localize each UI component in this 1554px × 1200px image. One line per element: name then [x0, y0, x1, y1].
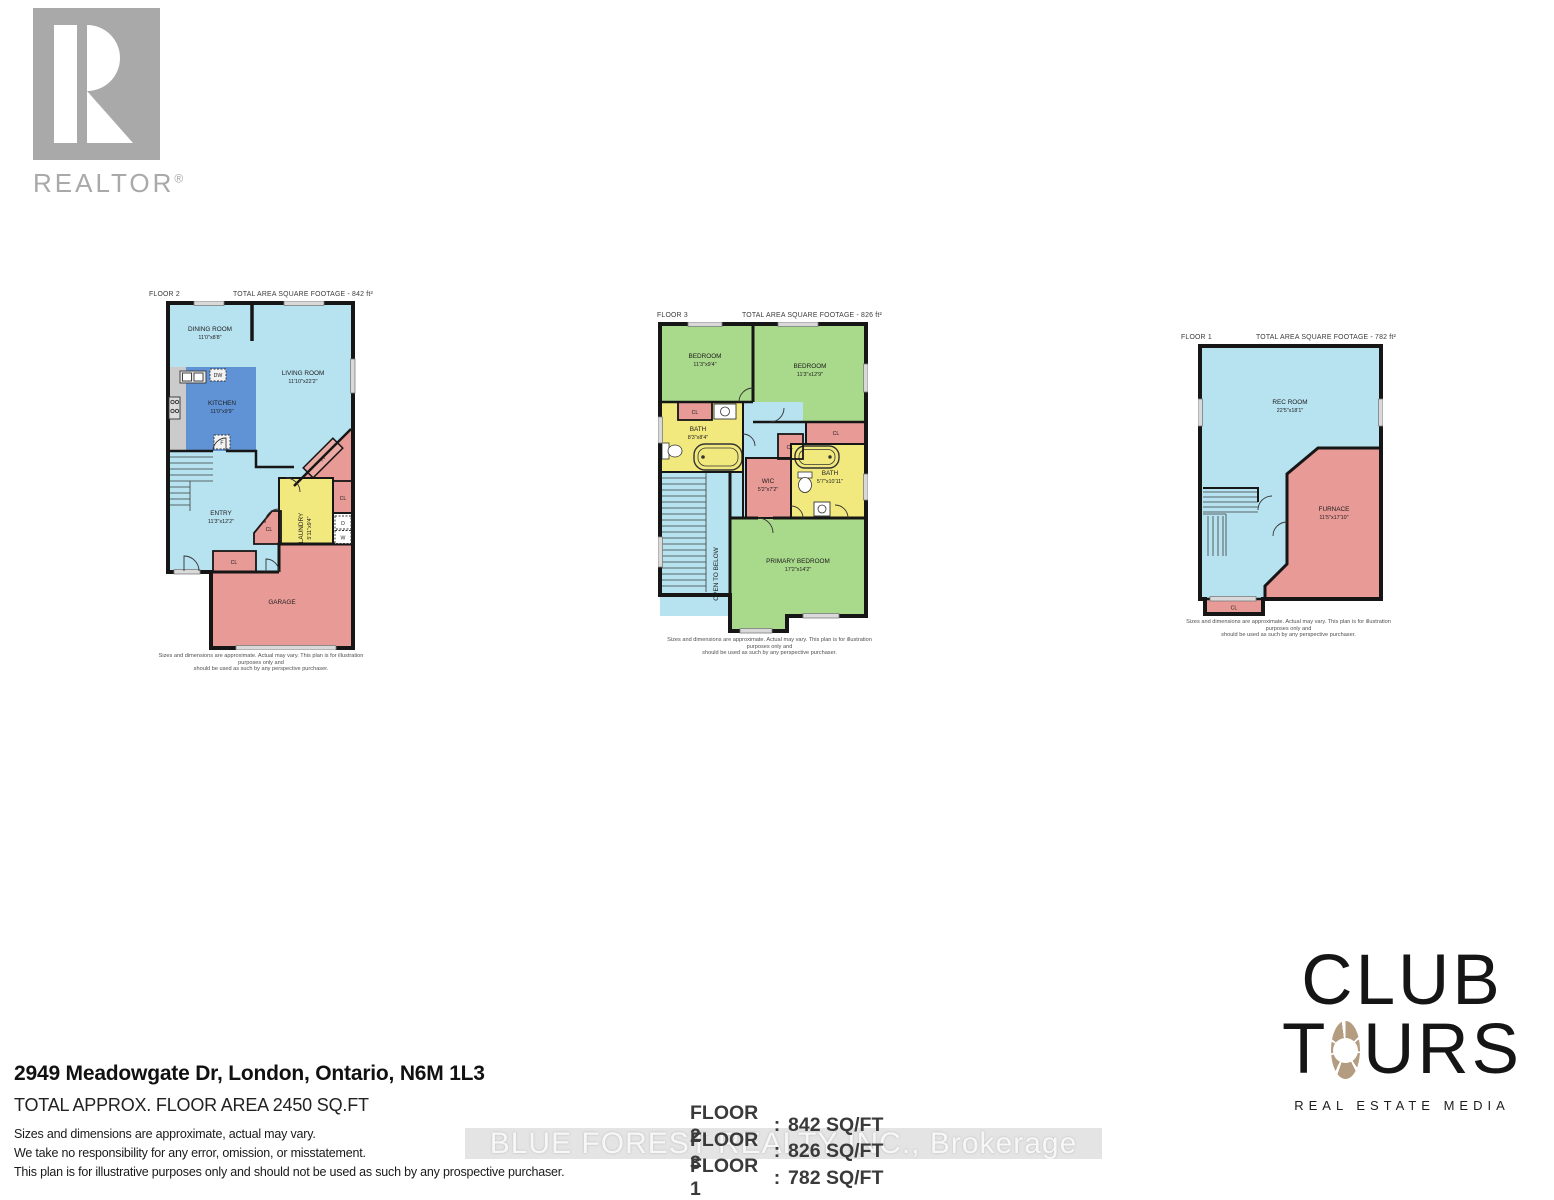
floor2-drawing: FP: [166, 301, 356, 650]
bedroom1-dims: 11'3"x9'4": [693, 362, 716, 368]
clubtours-word-tours: T URS: [1282, 1014, 1522, 1086]
fridge-label: F: [220, 441, 223, 447]
bedroom2-dims: 11'3"x12'9": [797, 372, 823, 378]
rec-room-dims: 22'5"x18'1": [1277, 408, 1304, 414]
bath2-dims: 5'7"x10'11": [817, 479, 843, 485]
floor1-title: FLOOR 1: [1181, 334, 1212, 341]
kitchen-dims: 11'0"x9'9": [210, 409, 233, 415]
laundry-label: LAUNDRY: [298, 512, 305, 543]
flyer-page: REALTOR® FLOOR 2 TOTAL AREA SQUARE FOOTA…: [0, 0, 1554, 1200]
note-line: Sizes and dimensions are approximate, ac…: [14, 1125, 564, 1144]
washer-label: W: [341, 536, 346, 542]
closet-label: CL: [266, 527, 273, 533]
clubtours-logo: CLUB T URS REAL ESTATE MEDIA: [1282, 948, 1522, 1113]
realtor-logo: REALTOR®: [33, 8, 213, 199]
floor-area-row: FLOOR 1 : 782 SQ/FT: [690, 1165, 883, 1192]
floor1-total-area: TOTAL AREA SQUARE FOOTAGE - 782 ft²: [1256, 334, 1396, 341]
furnace-label: FURNACE: [1319, 506, 1350, 513]
dryer-label: D: [341, 521, 345, 527]
kitchen-label: KITCHEN: [208, 400, 236, 407]
bath1-dims: 8'3"x8'4": [688, 435, 709, 441]
wic-dims: 5'2"x7'2": [758, 487, 779, 493]
closet-label: CL: [833, 431, 840, 437]
dining-room-label: DINING ROOM: [188, 326, 232, 333]
laundry-dims: 5'11"x9'4": [307, 516, 313, 539]
floor2-title: FLOOR 2: [149, 291, 180, 298]
floor3-title: FLOOR 3: [657, 312, 688, 319]
floor1-header: FLOOR 1 TOTAL AREA SQUARE FOOTAGE - 782 …: [1180, 334, 1397, 341]
dishwasher-label: DW: [214, 373, 223, 379]
living-room-label: LIVING ROOM: [282, 370, 325, 377]
bath2-label: BATH: [822, 470, 839, 477]
floor3-header: FLOOR 3 TOTAL AREA SQUARE FOOTAGE - 826 …: [656, 312, 883, 319]
floor2-disclaimer: Sizes and dimensions are approximate. Ac…: [148, 653, 374, 673]
floorplan-floor3: FLOOR 3 TOTAL AREA SQUARE FOOTAGE - 826 …: [656, 312, 883, 657]
garage-label: GARAGE: [268, 599, 295, 606]
wic-label: WIC: [762, 478, 775, 485]
entry-label: ENTRY: [210, 510, 232, 517]
bath1-label: BATH: [690, 426, 707, 433]
clubtours-word-club: CLUB: [1282, 948, 1522, 1014]
floor2-total-area: TOTAL AREA SQUARE FOOTAGE - 842 ft²: [233, 291, 373, 298]
floor-area-list: FLOOR 2 : 842 SQ/FT FLOOR 3 : 826 SQ/FT …: [690, 1112, 883, 1192]
primary-bedroom-label: PRIMARY BEDROOM: [766, 558, 830, 565]
floor1-drawing: REC ROOM 22'5"x18'1" FURNACE 11'5"x17'10…: [1198, 344, 1383, 616]
floor2-header: FLOOR 2 TOTAL AREA SQUARE FOOTAGE - 842 …: [148, 291, 374, 298]
floor1-disclaimer: Sizes and dimensions are approximate. Ac…: [1180, 619, 1397, 639]
living-room-dims: 11'10"x22'2": [288, 379, 317, 385]
realtor-r-icon: [33, 8, 160, 160]
floor3-drawing: BEDROOM 11'3"x9'4" BEDROOM 11'3"x12'9" C…: [658, 322, 868, 634]
address-block: 2949 Meadowgate Dr, London, Ontario, N6M…: [14, 1062, 564, 1182]
disclaimer-notes: Sizes and dimensions are approximate, ac…: [14, 1125, 564, 1182]
closet-label: CL: [231, 560, 238, 566]
closet-label: CL: [692, 410, 699, 416]
total-floor-area: TOTAL APPROX. FLOOR AREA 2450 SQ.FT: [14, 1095, 564, 1116]
bedroom1-label: BEDROOM: [688, 353, 721, 360]
primary-bedroom-dims: 17'2"x14'2": [785, 567, 812, 573]
open-to-below-label: OPEN TO BELOW: [713, 546, 720, 600]
floor3-total-area: TOTAL AREA SQUARE FOOTAGE - 826 ft²: [742, 312, 882, 319]
closet-label: CL: [340, 496, 347, 502]
bedroom2-label: BEDROOM: [793, 363, 826, 370]
rec-room-label: REC ROOM: [1272, 399, 1307, 406]
floorplan-floor1: FLOOR 1 TOTAL AREA SQUARE FOOTAGE - 782 …: [1180, 334, 1397, 639]
note-line: This plan is for illustrative purposes o…: [14, 1163, 564, 1182]
clubtours-tagline: REAL ESTATE MEDIA: [1282, 1098, 1522, 1113]
closet-label: CL: [787, 445, 794, 451]
property-address: 2949 Meadowgate Dr, London, Ontario, N6M…: [14, 1062, 564, 1086]
floor3-disclaimer: Sizes and dimensions are approximate. Ac…: [656, 637, 883, 657]
entry-dims: 11'3"x12'2": [208, 519, 234, 525]
dining-room-dims: 11'0"x8'8": [198, 335, 221, 341]
floorplan-floor2: FLOOR 2 TOTAL AREA SQUARE FOOTAGE - 842 …: [148, 291, 374, 673]
note-line: We take no responsibility for any error,…: [14, 1144, 564, 1163]
realtor-label: REALTOR®: [33, 168, 213, 199]
closet-label: CL: [1231, 606, 1238, 612]
furnace-dims: 11'5"x17'10": [1319, 515, 1348, 521]
camera-aperture-icon: [1331, 1021, 1360, 1079]
